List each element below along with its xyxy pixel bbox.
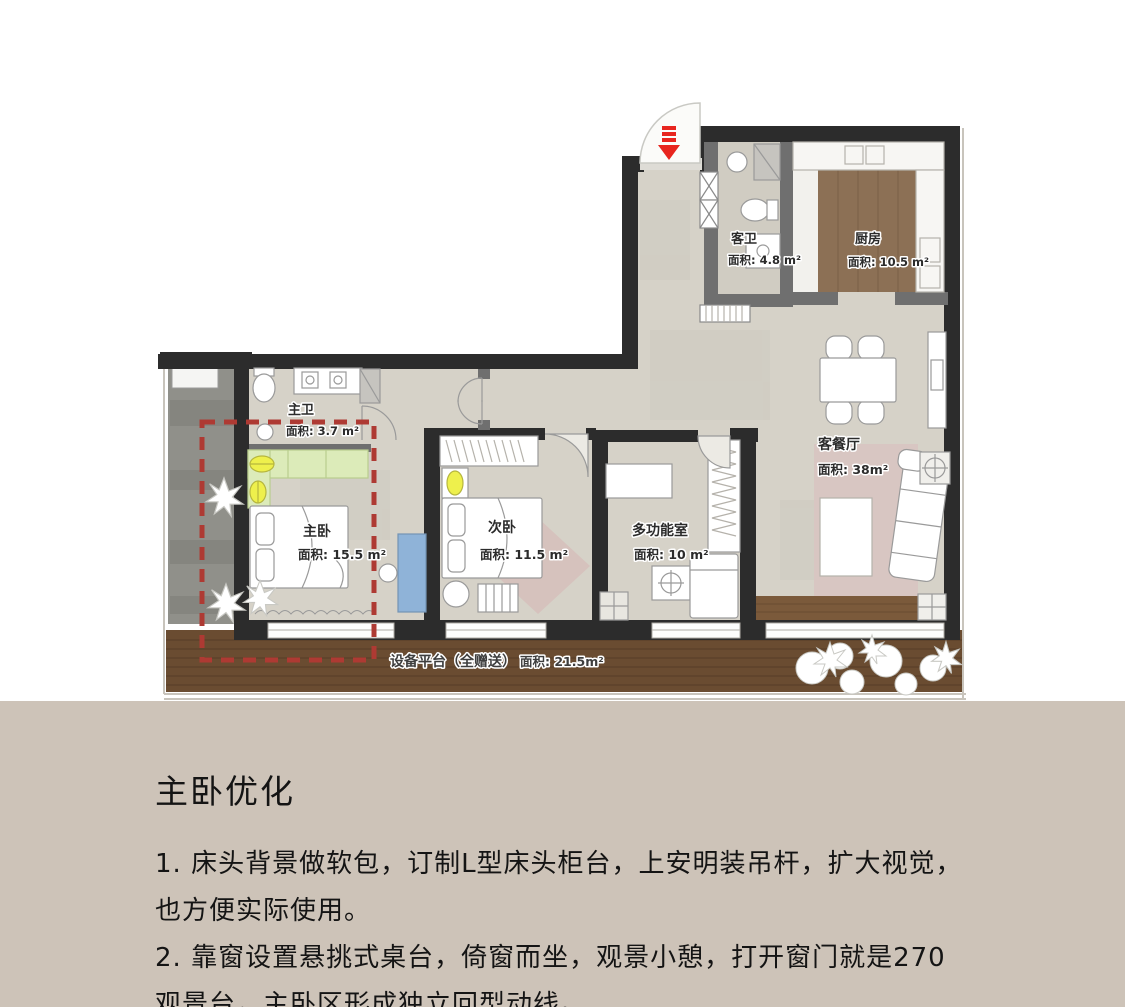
dresser bbox=[478, 584, 518, 612]
ac-unit-icon bbox=[600, 592, 628, 620]
area-equipment-deck: 面积: 21.5m² bbox=[520, 654, 604, 669]
notes-title: 主卧优化 bbox=[155, 765, 1085, 813]
living-wood-strip bbox=[756, 596, 944, 622]
toilet-icon bbox=[253, 374, 275, 402]
area-kitchen: 面积: 10.5 m² bbox=[848, 255, 929, 269]
rug-table bbox=[652, 566, 690, 600]
chair-icon bbox=[379, 564, 397, 582]
label-guest-bath: 客卫 bbox=[731, 231, 757, 247]
notes-line-1: 1. 床头背景做软包，订制L型床头柜台，上安明装吊杆，扩大视觉， bbox=[155, 841, 1085, 888]
kitchen-wood-floor bbox=[818, 170, 916, 292]
notes-line-2: 也方便实际使用。 bbox=[155, 888, 1085, 935]
label-equipment-deck: 设备平台（全赠送） bbox=[390, 653, 516, 670]
area-guest-bath: 面积: 4.8 m² bbox=[728, 253, 801, 267]
label-master-bedroom: 主卧 bbox=[303, 523, 331, 540]
coffee-table bbox=[820, 498, 872, 576]
tv-console bbox=[928, 332, 946, 428]
area-living-dining: 面积: 38m² bbox=[818, 462, 888, 477]
side-table bbox=[443, 581, 469, 607]
notes-line-3: 2. 靠窗设置悬挑式桌台，倚窗而坐，观景小憩，打开窗门就是270 bbox=[155, 935, 1085, 982]
label-master-bath: 主卫 bbox=[288, 402, 314, 418]
round-sink-icon bbox=[727, 152, 747, 172]
page: 客卫 面积: 4.8 m² 厨房 面积: 10.5 m² 主卫 面积: 3.7 … bbox=[0, 0, 1125, 1007]
bed bbox=[442, 498, 542, 578]
label-multi-room: 多功能室 bbox=[632, 522, 688, 539]
area-second-bedroom: 面积: 11.5 m² bbox=[480, 547, 568, 562]
notes-line-4: 观景台，主卧区形成独立回型动线。 bbox=[155, 982, 1085, 1007]
label-kitchen: 厨房 bbox=[855, 231, 881, 247]
area-master-bedroom: 面积: 15.5 m² bbox=[298, 547, 386, 562]
label-second-bedroom: 次卧 bbox=[488, 519, 516, 536]
lamp-icon bbox=[447, 471, 463, 495]
daybed bbox=[690, 554, 738, 618]
floor-plan: 客卫 面积: 4.8 m² 厨房 面积: 10.5 m² 主卫 面积: 3.7 … bbox=[0, 0, 1125, 701]
notes-panel: 主卧优化 1. 床头背景做软包，订制L型床头柜台，上安明装吊杆，扩大视觉， 也方… bbox=[0, 701, 1125, 1007]
toilet-icon bbox=[741, 199, 769, 221]
terrace-bench bbox=[172, 368, 218, 388]
dining-set bbox=[820, 336, 896, 424]
area-multi-room: 面积: 10 m² bbox=[634, 547, 709, 562]
label-living-dining: 客餐厅 bbox=[817, 436, 860, 453]
desk bbox=[606, 464, 672, 498]
area-master-bath: 面积: 3.7 m² bbox=[286, 424, 359, 438]
entry-door bbox=[640, 103, 702, 170]
